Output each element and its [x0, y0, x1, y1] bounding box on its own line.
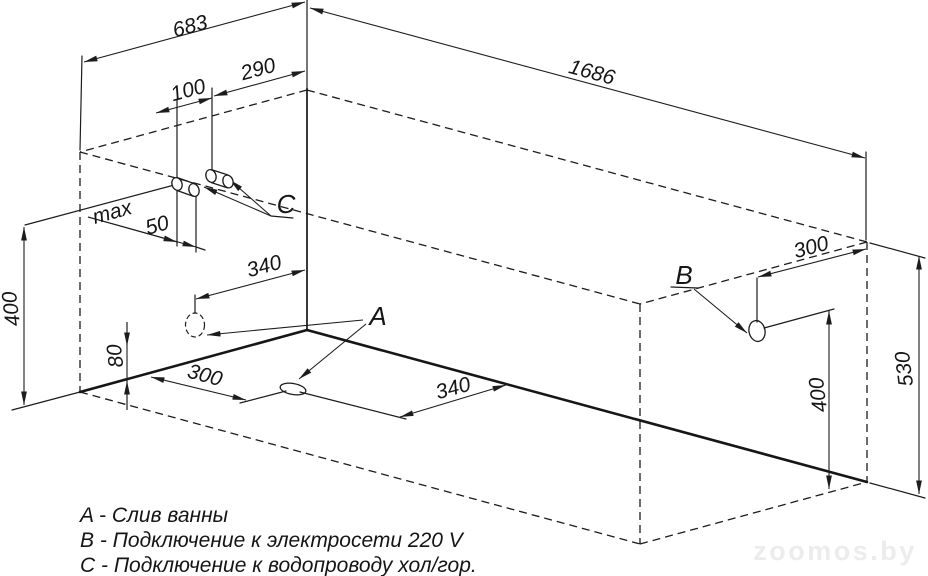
point-a-label: A — [367, 301, 386, 331]
point-b-label: B — [675, 260, 692, 290]
dim-400-left-label: 400 — [0, 290, 25, 328]
legend-item-a: A - Слив ванны — [78, 504, 229, 527]
wall-drain-outlet — [186, 313, 205, 337]
dim-80-label: 80 — [103, 343, 129, 369]
room-lines — [80, 88, 867, 482]
dim-290-label: 290 — [237, 54, 278, 86]
point-c-label: C — [277, 189, 296, 219]
watermark: zoomos.by — [753, 536, 917, 566]
dim-max-label: max — [90, 196, 136, 229]
dim-530-label: 530 — [891, 350, 918, 388]
floor-drain-a — [279, 381, 307, 396]
dim-100-label: 100 — [168, 75, 208, 107]
dim-50-label: 50 — [143, 211, 172, 239]
extension-lines — [12, 0, 925, 498]
legend-item-c: C - Подключение к водопроводу хол/гор. — [80, 554, 477, 576]
legend: A - Слив ванны B - Подключение к электро… — [78, 504, 477, 576]
water-pipes-c — [170, 168, 235, 197]
legend-item-b: B - Подключение к электросети 220 V — [80, 529, 465, 552]
dim-300-right-label: 300 — [791, 232, 831, 264]
installation-diagram-svg: 683 1686 290 100 max 50 340 80 400 300 3… — [0, 0, 928, 576]
dim-683-label: 683 — [170, 11, 210, 43]
hidden-bath-edges — [80, 90, 867, 544]
dim-400-right-label: 400 — [805, 376, 832, 414]
dimension-labels: 683 1686 290 100 max 50 340 80 400 300 3… — [0, 11, 918, 414]
power-point-b — [747, 319, 767, 343]
dim-340-floor-label: 340 — [433, 373, 473, 405]
dimension-lines — [24, 2, 919, 494]
point-letters: A B C — [277, 189, 693, 331]
bathtub-installation-drawing: 683 1686 290 100 max 50 340 80 400 300 3… — [0, 0, 928, 576]
